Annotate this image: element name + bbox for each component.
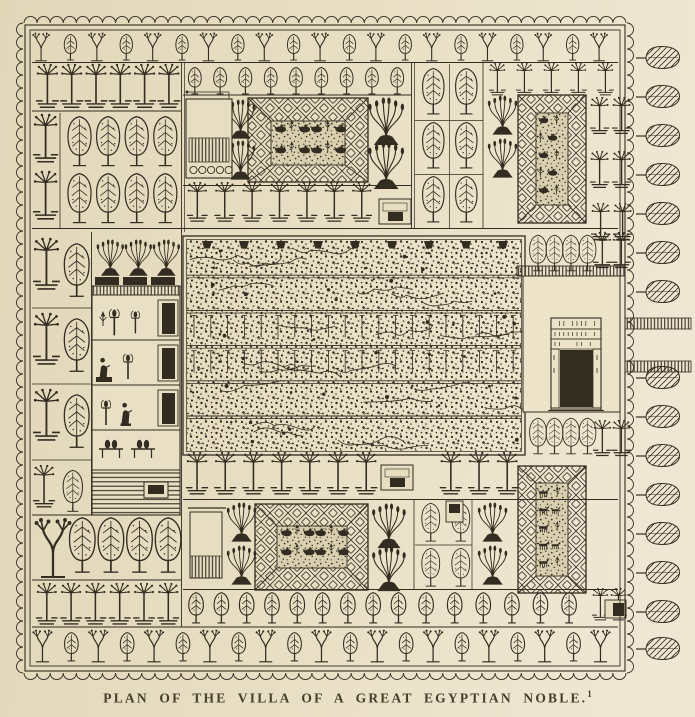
house-window	[148, 485, 164, 494]
villa-plan-engraving	[0, 0, 695, 717]
entrance-gateway	[517, 266, 625, 412]
villa-house	[92, 240, 180, 515]
book-page: PLAN OF THE VILLA OF A GREAT EGYPTIAN NO…	[0, 0, 695, 717]
house-door	[162, 303, 175, 334]
garden-pond-bottom	[255, 504, 368, 590]
garden-gatehouse-top	[379, 199, 411, 224]
garden-pond-top	[248, 98, 368, 182]
garden-hut-1	[446, 501, 463, 522]
garden-hut-2	[605, 600, 626, 618]
footnote-marker: 1	[587, 689, 592, 699]
garden-shrine-bottom	[188, 508, 226, 578]
figure-caption: PLAN OF THE VILLA OF A GREAT EGYPTIAN NO…	[0, 689, 695, 715]
house-door	[162, 393, 175, 424]
caption-text: PLAN OF THE VILLA OF A GREAT EGYPTIAN NO…	[103, 691, 587, 706]
garden-pond-right-bottom	[518, 466, 586, 593]
house-door	[162, 348, 175, 379]
garden-shrine-top	[186, 91, 233, 179]
garden-pond-right-top	[518, 95, 586, 223]
vineyard-plot	[183, 236, 539, 455]
garden-gatehouse-bottom	[381, 465, 413, 490]
gateway-doorway	[560, 350, 593, 407]
